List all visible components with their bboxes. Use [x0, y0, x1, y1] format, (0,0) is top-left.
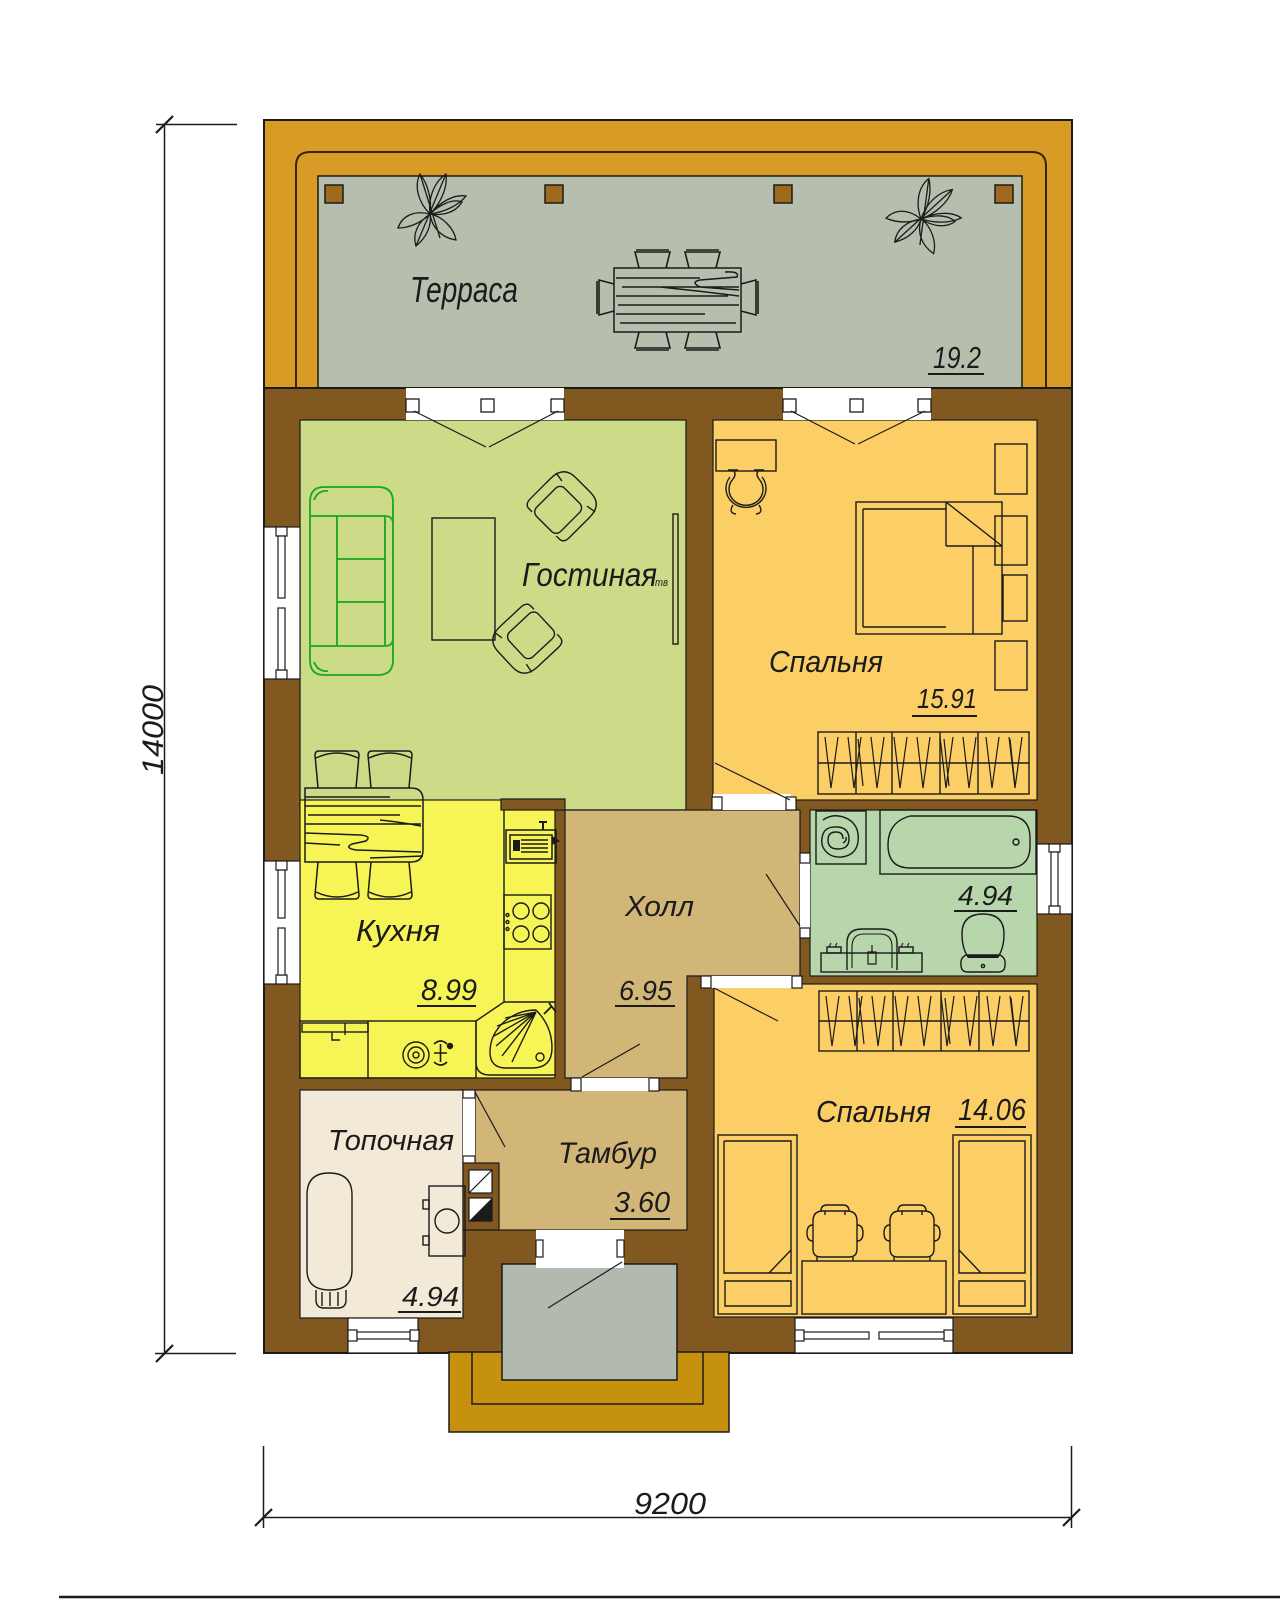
svg-text:14000: 14000: [137, 685, 170, 775]
svg-text:Гостиная: Гостиная: [522, 556, 657, 593]
svg-text:Холл: Холл: [624, 891, 694, 923]
svg-text:Топочная: Топочная: [328, 1125, 454, 1157]
svg-text:тв: тв: [655, 577, 668, 589]
svg-text:Спальня: Спальня: [769, 644, 883, 679]
svg-text:Спальня: Спальня: [816, 1094, 931, 1129]
svg-text:9200: 9200: [634, 1486, 706, 1521]
svg-text:14.06: 14.06: [958, 1092, 1027, 1127]
svg-text:4.94: 4.94: [402, 1281, 459, 1312]
svg-text:4.94: 4.94: [958, 880, 1013, 911]
svg-text:8.99: 8.99: [421, 974, 477, 1007]
svg-text:6.95: 6.95: [619, 975, 672, 1006]
svg-text:19.2: 19.2: [933, 340, 981, 375]
svg-text:3.60: 3.60: [614, 1187, 670, 1219]
svg-text:15.91: 15.91: [917, 683, 977, 714]
svg-text:Тамбур: Тамбур: [558, 1137, 657, 1170]
svg-text:Терраса: Терраса: [410, 269, 518, 310]
svg-text:Кухня: Кухня: [356, 913, 440, 948]
